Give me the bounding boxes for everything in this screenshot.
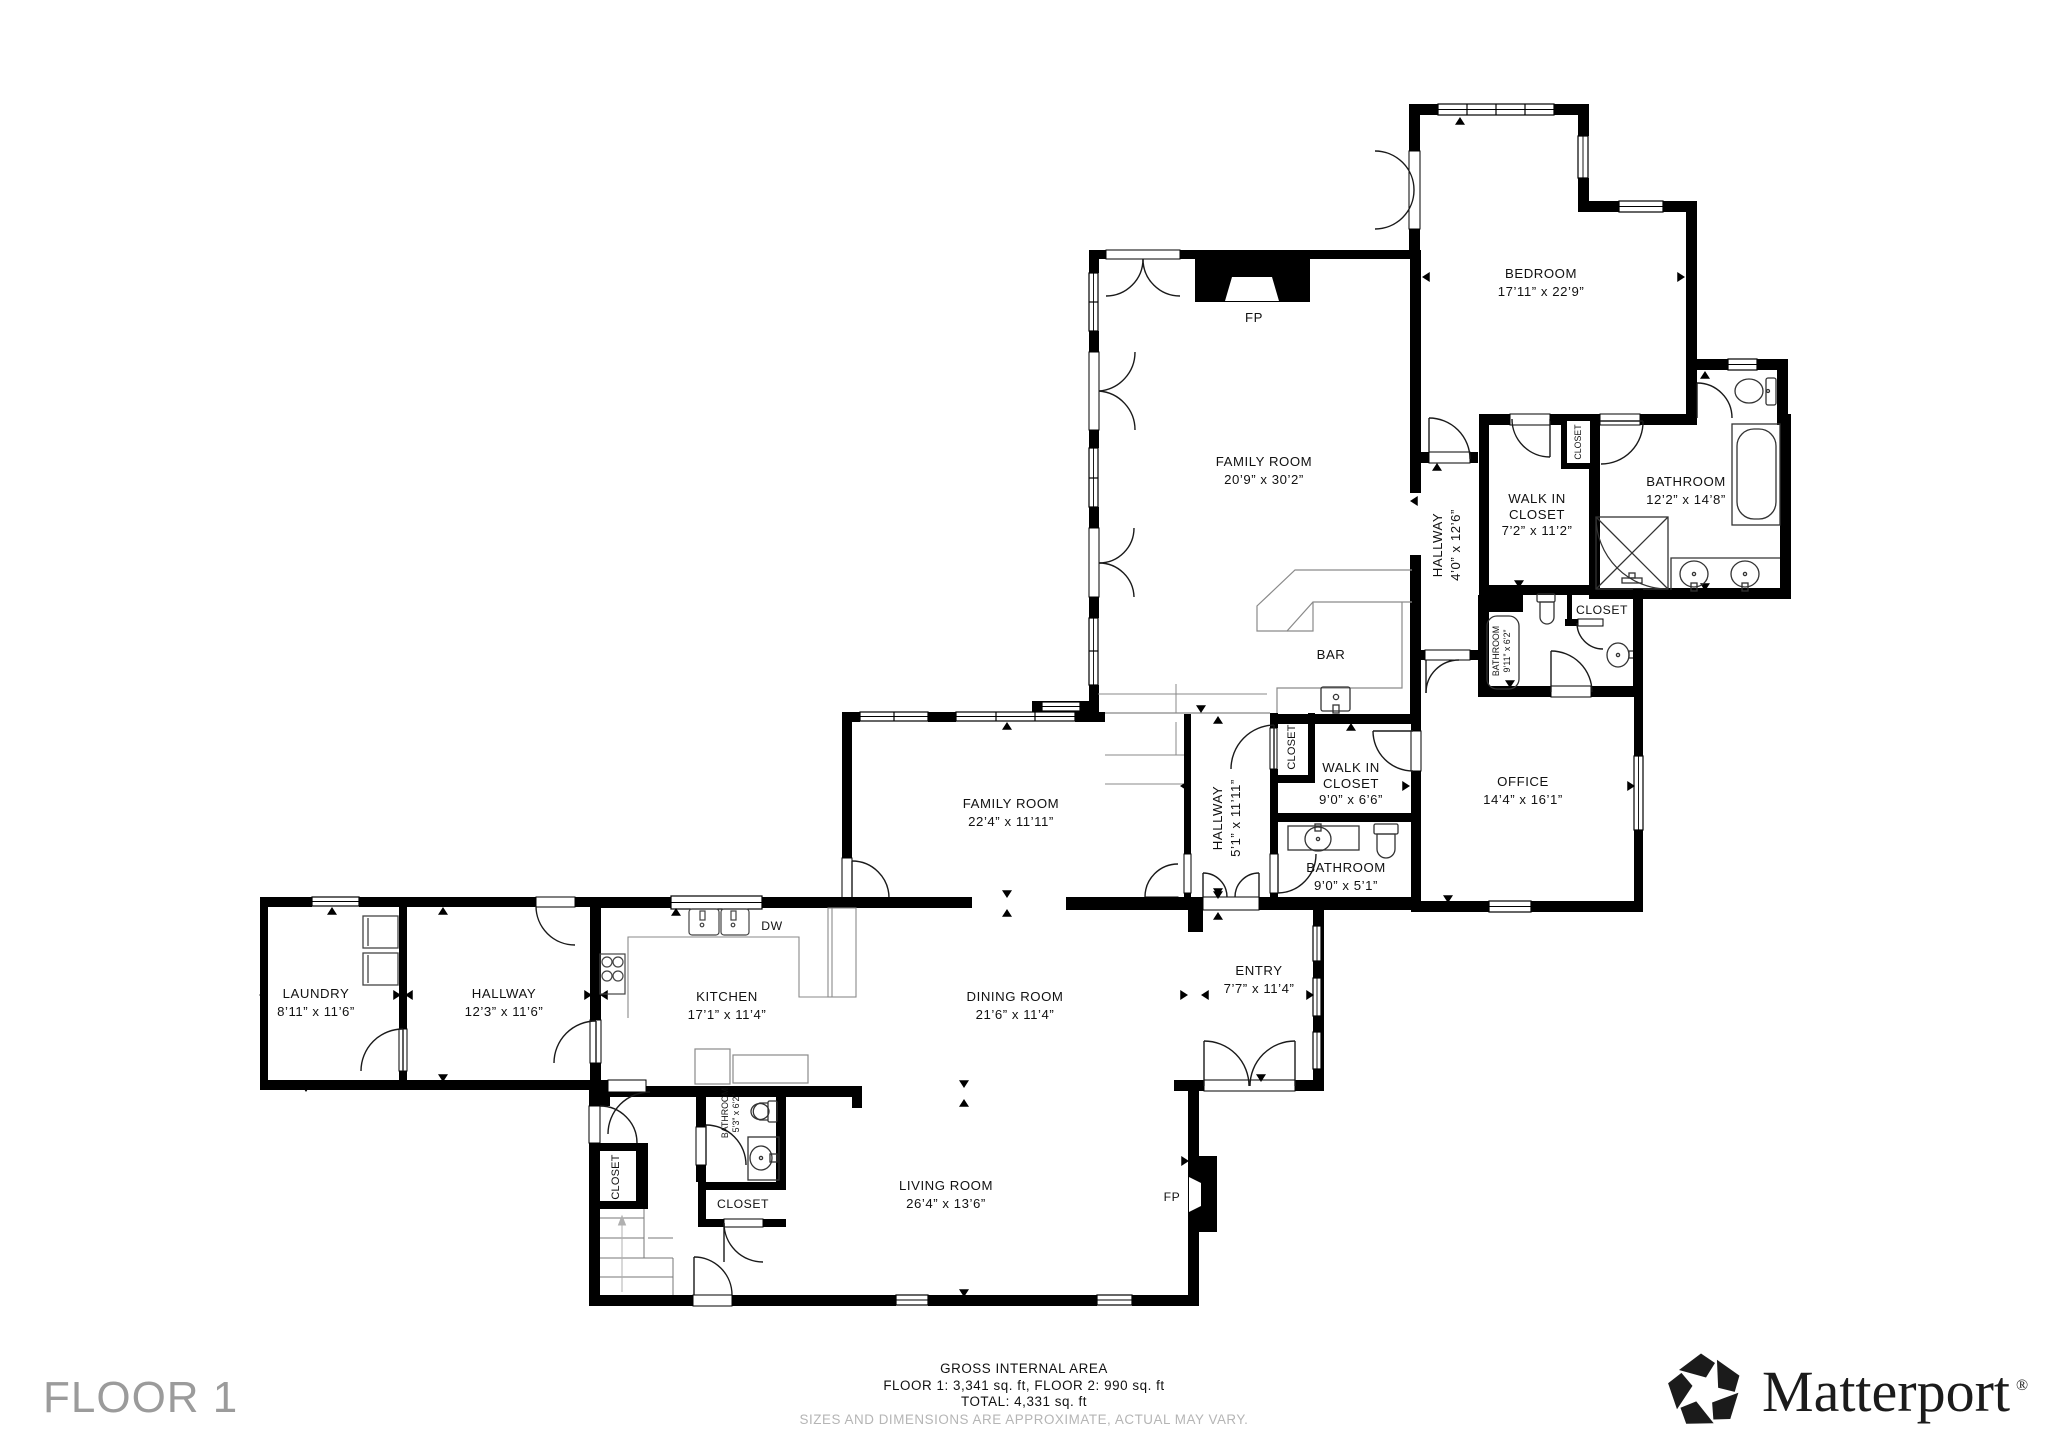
svg-text:21’6” x 11’4”: 21’6” x 11’4”	[976, 1007, 1055, 1022]
svg-text:SIZES AND DIMENSIONS ARE APPRO: SIZES AND DIMENSIONS ARE APPROXIMATE, AC…	[800, 1412, 1249, 1427]
svg-text:CLOSET: CLOSET	[1509, 507, 1565, 522]
svg-text:12’2” x 14’8”: 12’2” x 14’8”	[1646, 492, 1726, 507]
svg-text:CLOSET: CLOSET	[1573, 424, 1583, 460]
svg-text:DW: DW	[761, 919, 782, 933]
svg-text:CLOSET: CLOSET	[1286, 724, 1298, 769]
svg-text:BATHROOM: BATHROOM	[1646, 474, 1726, 489]
svg-text:DINING ROOM: DINING ROOM	[967, 989, 1064, 1004]
svg-text:14’4” x 16’1”: 14’4” x 16’1”	[1483, 792, 1563, 807]
svg-text:WALK IN: WALK IN	[1508, 491, 1566, 506]
svg-text:CLOSET: CLOSET	[717, 1197, 769, 1211]
svg-text:HALLWAY: HALLWAY	[1430, 513, 1445, 577]
svg-text:8’11” x 11’6”: 8’11” x 11’6”	[277, 1004, 355, 1019]
svg-text:OFFICE: OFFICE	[1497, 774, 1549, 789]
svg-text:5’3” x 6’2”: 5’3” x 6’2”	[731, 1094, 741, 1133]
svg-text:5’1” x 11’11”: 5’1” x 11’11”	[1228, 779, 1243, 857]
svg-text:22’4” x 11’11”: 22’4” x 11’11”	[968, 814, 1054, 829]
svg-text:9’0” x 5’1”: 9’0” x 5’1”	[1314, 878, 1378, 893]
svg-text:GROSS INTERNAL AREA: GROSS INTERNAL AREA	[940, 1361, 1108, 1376]
svg-text:LIVING ROOM: LIVING ROOM	[899, 1178, 993, 1193]
svg-text:FAMILY ROOM: FAMILY ROOM	[1216, 454, 1312, 469]
svg-text:HALLWAY: HALLWAY	[472, 986, 536, 1001]
svg-text:CLOSET: CLOSET	[1323, 776, 1379, 791]
svg-text:12’3” x 11’6”: 12’3” x 11’6”	[465, 1004, 544, 1019]
svg-text:CLOSET: CLOSET	[610, 1154, 622, 1199]
svg-text:20’9” x 30’2”: 20’9” x 30’2”	[1224, 472, 1304, 487]
svg-text:9’0” x 6’6”: 9’0” x 6’6”	[1319, 792, 1383, 807]
svg-text:7’7” x 11’4”: 7’7” x 11’4”	[1224, 981, 1295, 996]
svg-text:FLOOR 1: FLOOR 1	[43, 1373, 238, 1422]
svg-text:4’0” x 12’6”: 4’0” x 12’6”	[1448, 509, 1463, 581]
svg-text:FLOOR 1: 3,341 sq. ft, FLOOR 2: FLOOR 1: 3,341 sq. ft, FLOOR 2: 990 sq. …	[883, 1378, 1164, 1393]
svg-text:ENTRY: ENTRY	[1235, 963, 1282, 978]
svg-text:BATHROOM: BATHROOM	[720, 1088, 730, 1138]
svg-text:17’11” x 22’9”: 17’11” x 22’9”	[1498, 284, 1585, 299]
svg-text:TOTAL: 4,331 sq. ft: TOTAL: 4,331 sq. ft	[961, 1394, 1087, 1409]
svg-text:BATHROOM: BATHROOM	[1306, 860, 1386, 875]
svg-text:®: ®	[2016, 1377, 2028, 1394]
svg-text:HALLWAY: HALLWAY	[1210, 786, 1225, 850]
svg-text:WALK IN: WALK IN	[1322, 760, 1380, 775]
svg-text:26’4” x 13’6”: 26’4” x 13’6”	[906, 1196, 986, 1211]
svg-text:BAR: BAR	[1317, 647, 1346, 662]
svg-text:Matterport: Matterport	[1762, 1359, 2010, 1424]
svg-text:9’11” x 6’2”: 9’11” x 6’2”	[1502, 630, 1512, 673]
svg-text:FAMILY ROOM: FAMILY ROOM	[963, 796, 1059, 811]
svg-text:CLOSET: CLOSET	[1576, 603, 1628, 617]
svg-text:BEDROOM: BEDROOM	[1505, 266, 1577, 281]
svg-text:FP: FP	[1164, 1190, 1181, 1204]
svg-text:BATHROOM: BATHROOM	[1491, 626, 1501, 676]
svg-text:FP: FP	[1245, 310, 1263, 325]
svg-text:7’2” x 11’2”: 7’2” x 11’2”	[1502, 523, 1573, 538]
svg-text:LAUNDRY: LAUNDRY	[283, 986, 350, 1001]
svg-text:KITCHEN: KITCHEN	[696, 989, 758, 1004]
svg-text:17’1” x 11’4”: 17’1” x 11’4”	[688, 1007, 767, 1022]
